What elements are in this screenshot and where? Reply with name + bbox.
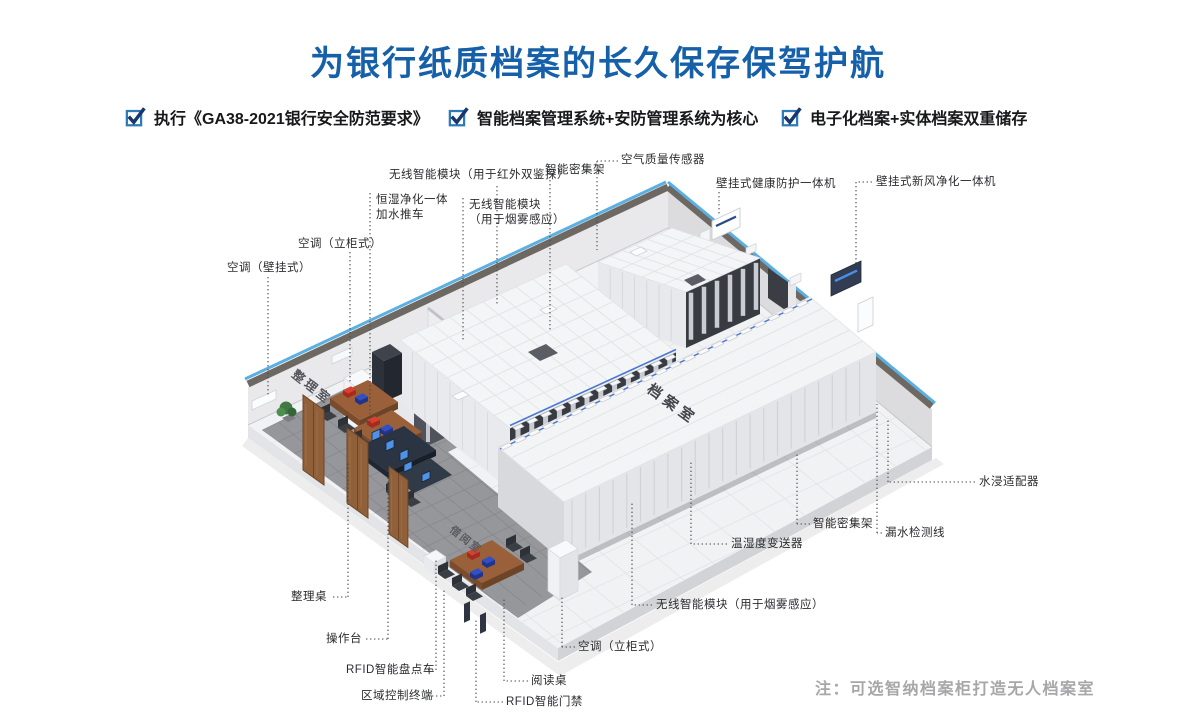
water-immersion-adapter-label: 水浸适配器 [979, 475, 1039, 490]
office-floor-tiles [262, 266, 821, 621]
smart-dense-rack-right-label: 智能密集架 [813, 517, 873, 532]
reading-room-text: 借阅室 [446, 523, 484, 557]
reading-room-furniture [438, 534, 578, 633]
health-protection-unit [712, 208, 740, 240]
rfid-inventory-cart-label: RFID智能盘点车 [346, 663, 435, 678]
footnote: 注：可选智纳档案柜打造无人档案室 [815, 675, 1095, 699]
wireless-module-smoke-top-label: 无线智能模块 （用于烟雾感应） [469, 198, 565, 228]
zone-control-terminal-label: 区域控制终端 [361, 689, 433, 704]
shelving-block-d [372, 340, 462, 452]
check-icon [782, 108, 801, 127]
wireless-module-ir-label: 无线智能模块（用于红外双鉴探） [389, 168, 569, 183]
ac-cabinet-left-label: 空调（立柜式） [298, 237, 382, 252]
office-floor [262, 348, 592, 618]
check-item-dual-storage: 电子化档案+实体档案双重储存 [782, 104, 1027, 130]
freshair-purifier-unit [831, 261, 861, 296]
wall-freshair-unit-label: 壁挂式新风净化一体机 [876, 175, 996, 190]
check-item-smart-system: 智能档案管理系统+安防管理系统为核心 [449, 104, 758, 130]
partition-wall [428, 308, 516, 418]
sorting-room-furniture [277, 344, 453, 575]
wall-ac-unit [252, 390, 276, 410]
check-label: 执行《GA38-2021银行安全防范要求》 [154, 105, 429, 129]
wall-health-unit-label: 壁挂式健康防护一体机 [716, 177, 836, 192]
smart-dense-rack-top-label: 智能密集架 [545, 163, 605, 178]
check-icon [449, 108, 468, 127]
sorting-room-text: 整理室 [289, 367, 335, 407]
wireless-module-smoke-bottom-label: 无线智能模块（用于烟雾感应） [656, 598, 824, 613]
check-icon [126, 108, 145, 127]
temp-humidity-transmitter-label: 温湿度变送器 [731, 537, 803, 552]
humidify-purify-cart-label: 恒湿净化一体 加水推车 [376, 193, 448, 223]
archive-room-text: 档案室 [644, 380, 702, 429]
check-label: 智能档案管理系统+安防管理系统为核心 [477, 105, 758, 129]
sorting-desk-label: 整理桌 [291, 590, 327, 605]
ac-cabinet-bottom-label: 空调（立柜式） [578, 640, 662, 655]
rfid-gate [464, 601, 486, 634]
operation-console-label: 操作台 [326, 632, 362, 647]
check-label: 电子化档案+实体档案双重储存 [810, 105, 1027, 129]
floor-slab [242, 228, 944, 676]
ac-wall-left-label: 空调（壁挂式） [227, 261, 311, 276]
reading-desk-label: 阅读桌 [531, 674, 567, 689]
rfid-access-gate-label: RFID智能门禁 [506, 695, 583, 710]
floor-tiles [273, 223, 1017, 667]
shelving-block-b [598, 228, 760, 348]
air-quality-sensor-label: 空气质量传感器 [621, 153, 705, 168]
infographic-page: 为银行纸质档案的长久保存保驾护航 执行《GA38-2021银行安全防范要求》 智… [0, 0, 1196, 721]
page-title: 为银行纸质档案的长久保存保驾护航 [0, 36, 1196, 85]
shelving-block-a [400, 264, 676, 496]
leak-detection-line-label: 漏水检测线 [885, 526, 945, 541]
check-item-ga38: 执行《GA38-2021银行安全防范要求》 [126, 104, 429, 130]
walls [245, 182, 935, 447]
